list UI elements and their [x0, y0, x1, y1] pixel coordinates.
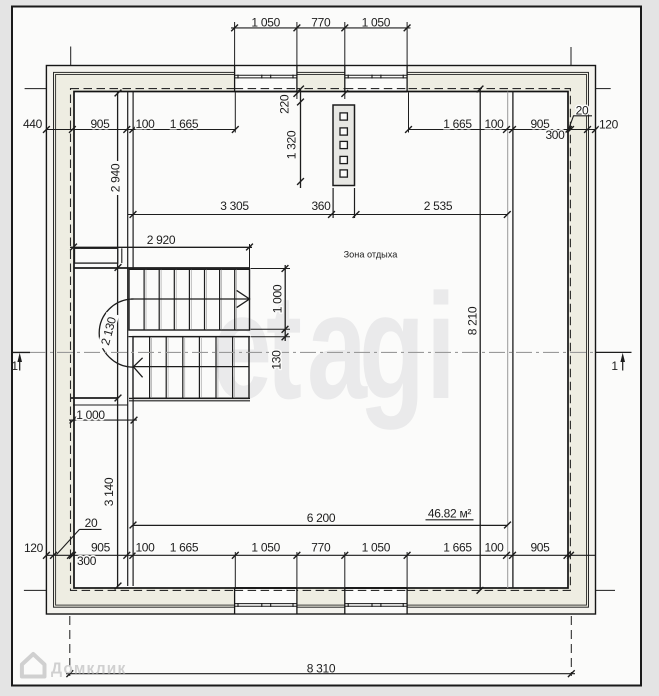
svg-text:120: 120	[599, 118, 619, 132]
svg-text:Зона отдыха: Зона отдыха	[344, 250, 399, 260]
svg-text:100: 100	[135, 541, 155, 555]
svg-text:3 305: 3 305	[220, 199, 249, 213]
svg-text:2 920: 2 920	[147, 233, 176, 247]
svg-text:300: 300	[545, 128, 565, 142]
svg-text:1 050: 1 050	[251, 541, 280, 555]
svg-text:1 000: 1 000	[271, 284, 285, 313]
svg-text:1 050: 1 050	[251, 16, 280, 30]
svg-text:440: 440	[23, 117, 43, 131]
svg-text:130: 130	[270, 350, 284, 370]
svg-text:100: 100	[484, 117, 504, 131]
svg-text:1 050: 1 050	[362, 16, 391, 30]
svg-text:1 665: 1 665	[170, 117, 199, 131]
svg-text:3 140: 3 140	[102, 477, 116, 506]
svg-text:100: 100	[135, 117, 155, 131]
svg-text:905: 905	[91, 541, 111, 555]
svg-text:6 200: 6 200	[307, 511, 336, 525]
svg-text:1: 1	[11, 359, 18, 373]
svg-text:100: 100	[484, 541, 504, 555]
svg-text:2 535: 2 535	[424, 199, 453, 213]
svg-text:1: 1	[611, 359, 618, 373]
svg-text:220: 220	[278, 94, 292, 114]
svg-text:120: 120	[24, 541, 44, 555]
svg-text:g: g	[359, 263, 425, 431]
svg-text:770: 770	[311, 16, 331, 30]
svg-text:770: 770	[311, 541, 331, 555]
svg-text:1 665: 1 665	[443, 117, 472, 131]
svg-text:1 665: 1 665	[170, 541, 199, 555]
svg-text:20: 20	[85, 516, 98, 530]
svg-text:2 940: 2 940	[109, 163, 123, 192]
svg-text:300: 300	[77, 554, 97, 568]
svg-text:e: e	[212, 263, 272, 431]
svg-text:Домклик: Домклик	[51, 661, 126, 678]
svg-text:1 050: 1 050	[362, 541, 391, 555]
svg-text:1 000: 1 000	[76, 408, 105, 422]
svg-text:46.82 м²: 46.82 м²	[428, 507, 472, 521]
svg-text:8 210: 8 210	[466, 306, 480, 335]
svg-text:1 320: 1 320	[285, 130, 299, 159]
svg-text:360: 360	[311, 199, 331, 213]
svg-text:1 665: 1 665	[443, 541, 472, 555]
svg-text:905: 905	[90, 117, 110, 131]
svg-text:8 310: 8 310	[307, 661, 336, 675]
svg-text:i: i	[426, 263, 456, 431]
svg-text:905: 905	[530, 541, 550, 555]
